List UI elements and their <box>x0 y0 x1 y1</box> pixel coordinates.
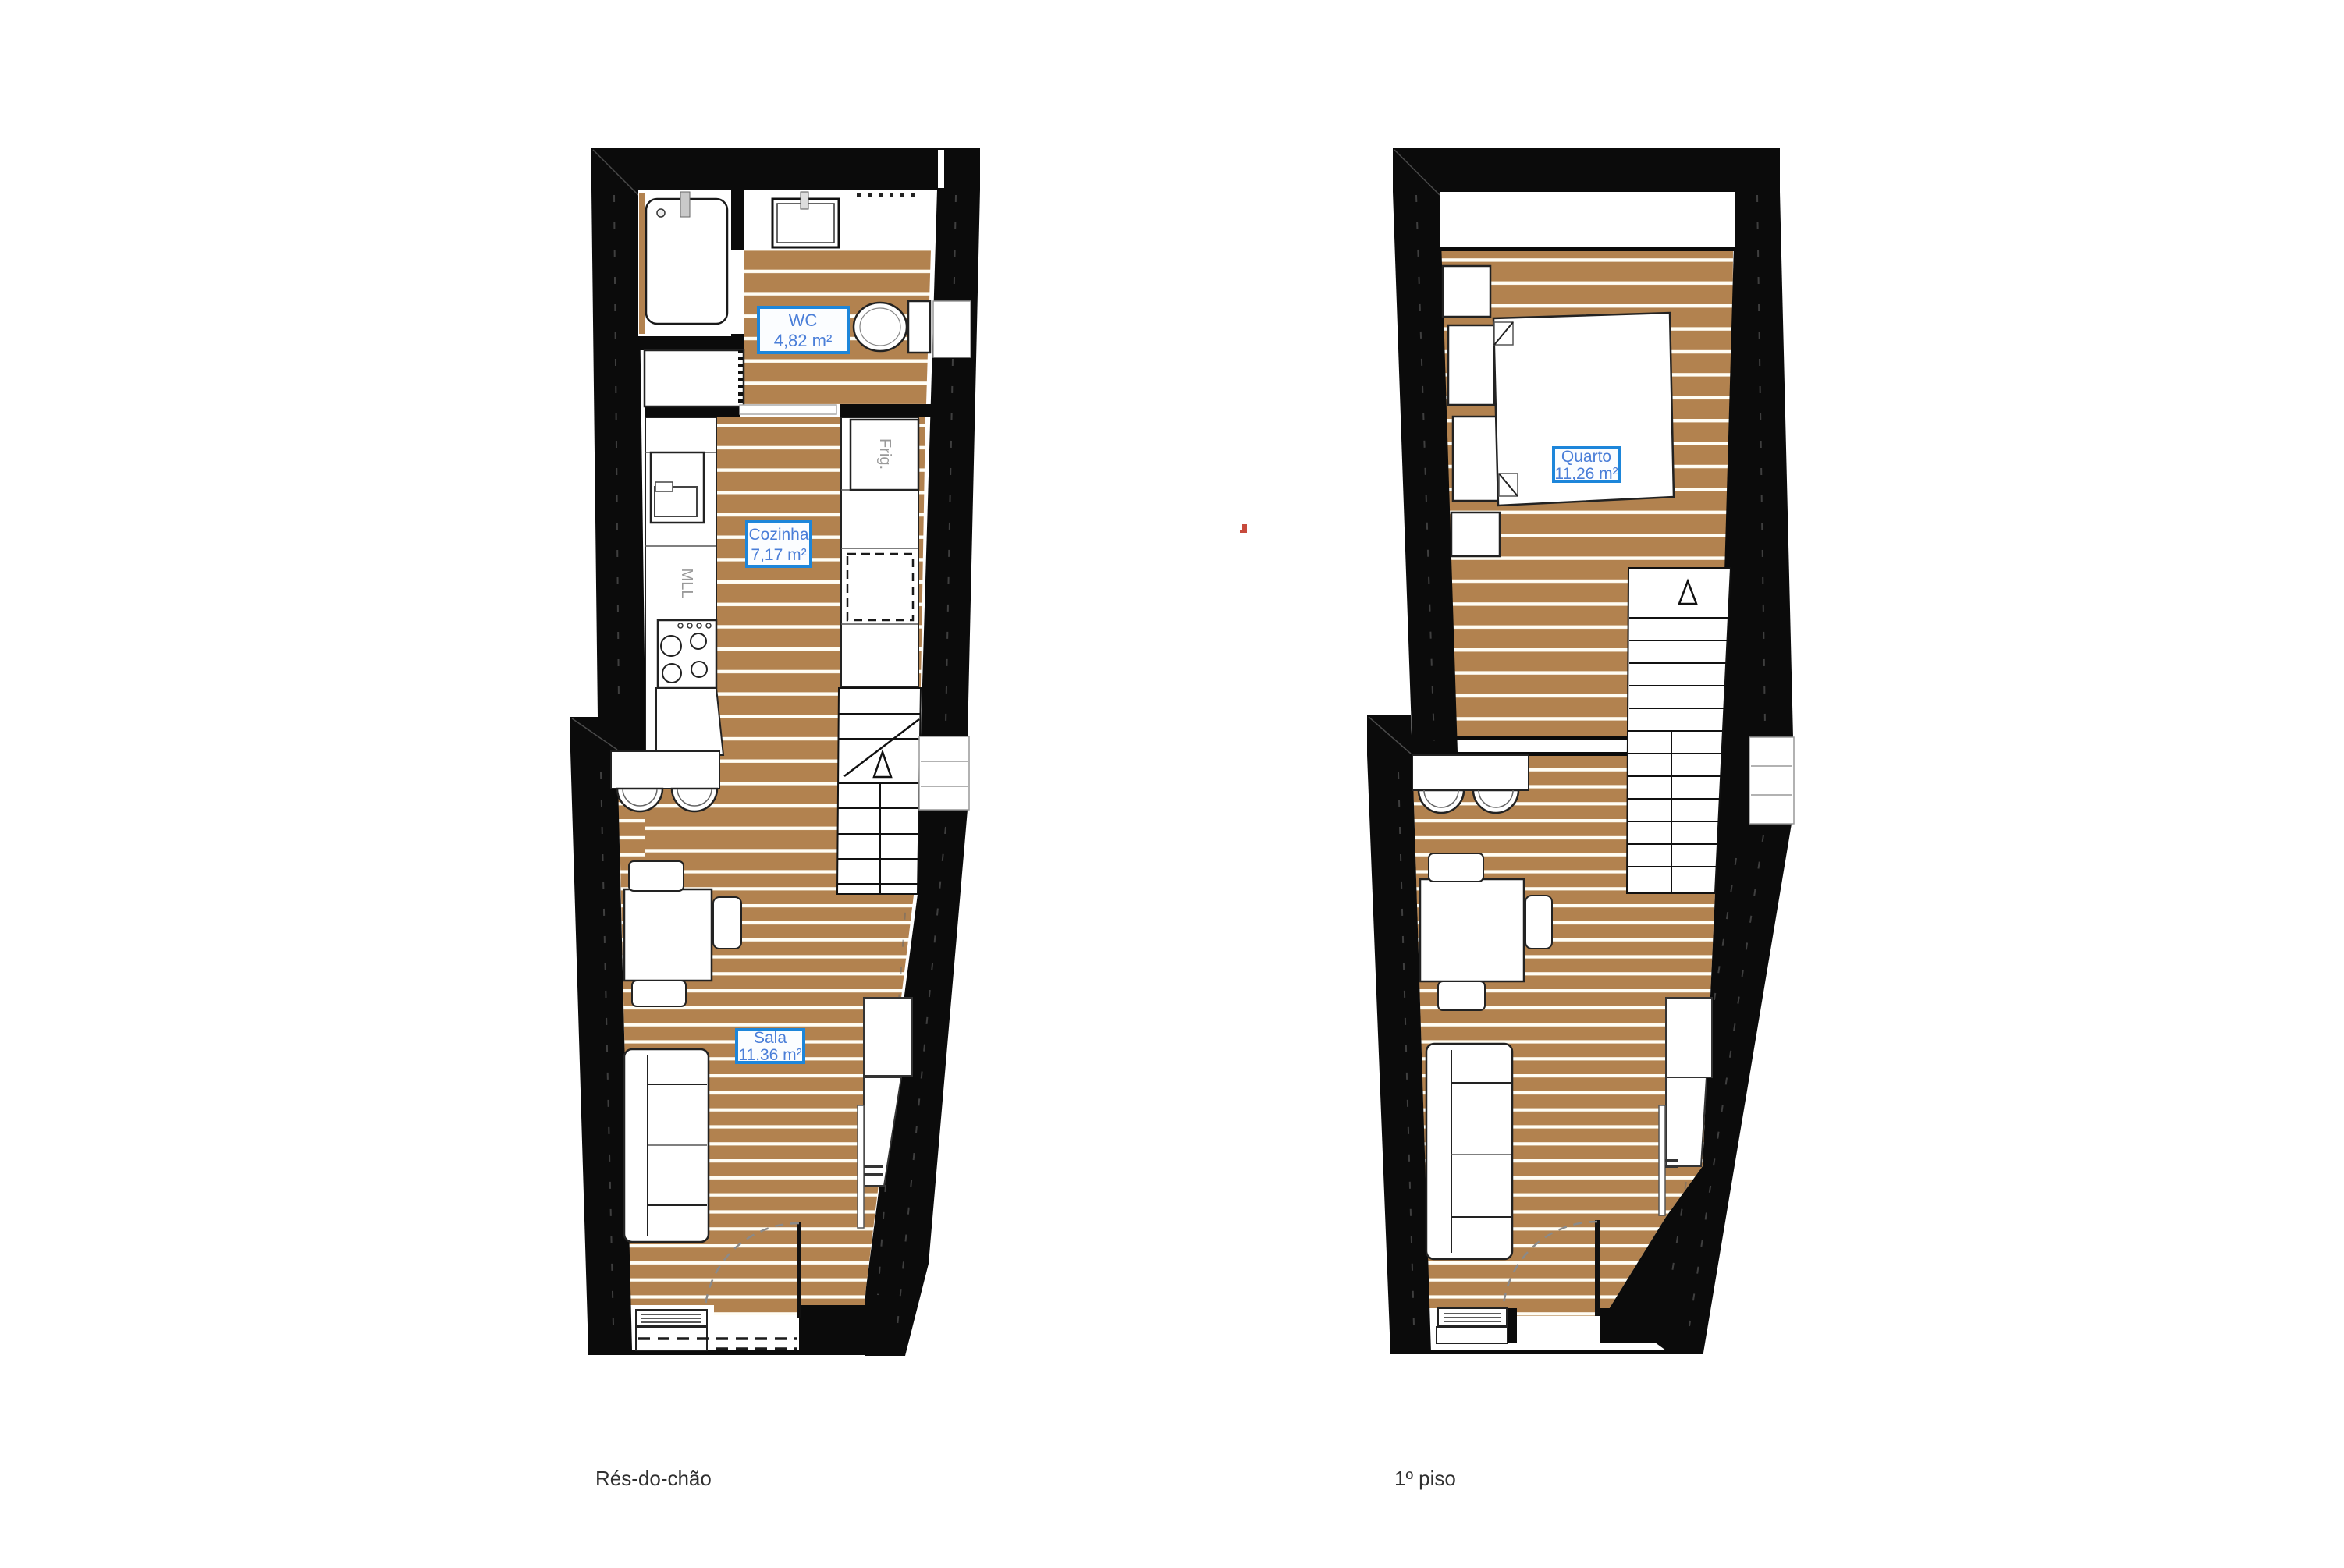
svg-text:Cozinha: Cozinha <box>748 526 808 544</box>
svg-text:1º piso: 1º piso <box>1394 1467 1456 1490</box>
svg-text:MLL: MLL <box>678 569 695 599</box>
svg-text:Quarto: Quarto <box>1561 448 1611 466</box>
svg-text:Rés-do-chão: Rés-do-chão <box>595 1467 712 1490</box>
svg-text:WC: WC <box>789 310 818 330</box>
svg-text:11,26 m²: 11,26 m² <box>1554 465 1618 483</box>
svg-text:7,17 m²: 7,17 m² <box>751 546 806 564</box>
svg-text:11,36 m²: 11,36 m² <box>738 1046 801 1064</box>
svg-text:4,82 m²: 4,82 m² <box>774 331 833 350</box>
svg-text:Frig.: Frig. <box>876 438 893 470</box>
svg-text:Sala: Sala <box>754 1029 787 1047</box>
